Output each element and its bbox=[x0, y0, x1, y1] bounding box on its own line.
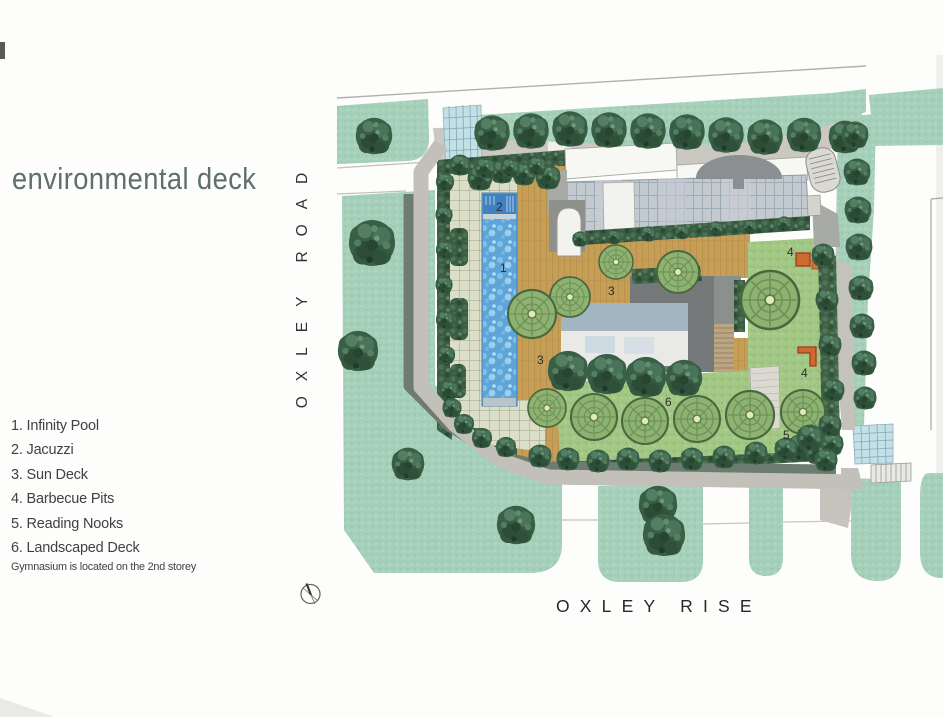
svg-text:6. Landscaped Deck: 6. Landscaped Deck bbox=[11, 540, 141, 556]
svg-text:2: 2 bbox=[496, 200, 503, 214]
svg-text:2. Jacuzzi: 2. Jacuzzi bbox=[11, 442, 73, 458]
svg-text:4. Barbecue Pits: 4. Barbecue Pits bbox=[11, 491, 114, 507]
svg-text:OXLEY ROAD: OXLEY ROAD bbox=[294, 158, 311, 409]
svg-text:6: 6 bbox=[665, 395, 672, 409]
svg-text:1: 1 bbox=[500, 261, 507, 275]
svg-text:3: 3 bbox=[608, 284, 615, 298]
svg-text:3. Sun Deck: 3. Sun Deck bbox=[11, 467, 89, 483]
svg-text:1. Infinity Pool: 1. Infinity Pool bbox=[11, 418, 99, 434]
svg-text:5. Reading Nooks: 5. Reading Nooks bbox=[11, 516, 123, 532]
svg-text:4: 4 bbox=[801, 366, 808, 380]
svg-text:Gymnasium is located on the 2n: Gymnasium is located on the 2nd storey bbox=[11, 561, 197, 573]
svg-text:3: 3 bbox=[537, 353, 544, 367]
svg-text:4: 4 bbox=[787, 245, 794, 259]
svg-text:OXLEY RISE: OXLEY RISE bbox=[556, 596, 762, 616]
svg-text:environmental deck: environmental deck bbox=[12, 162, 256, 196]
svg-text:5: 5 bbox=[783, 428, 790, 442]
